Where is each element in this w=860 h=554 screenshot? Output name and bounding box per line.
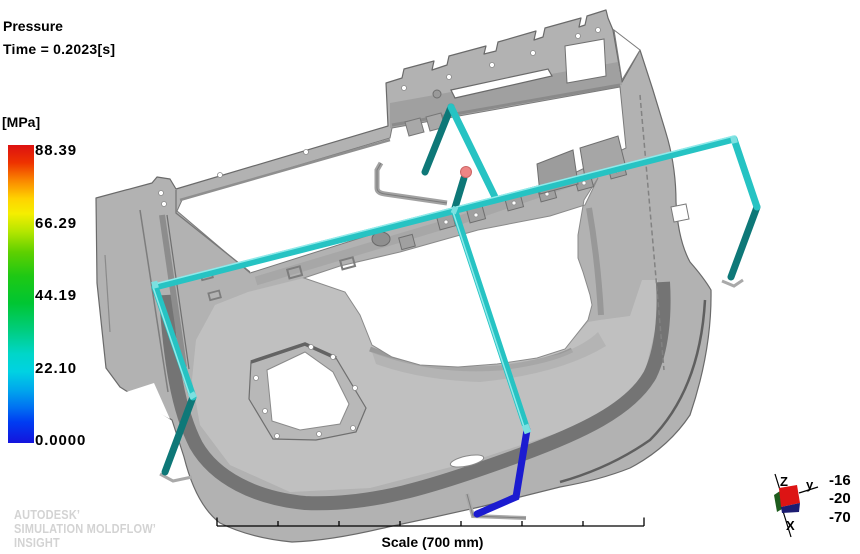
svg-text:Z: Z bbox=[780, 474, 788, 489]
svg-text:X: X bbox=[786, 518, 795, 533]
svg-text:y: y bbox=[806, 477, 814, 492]
